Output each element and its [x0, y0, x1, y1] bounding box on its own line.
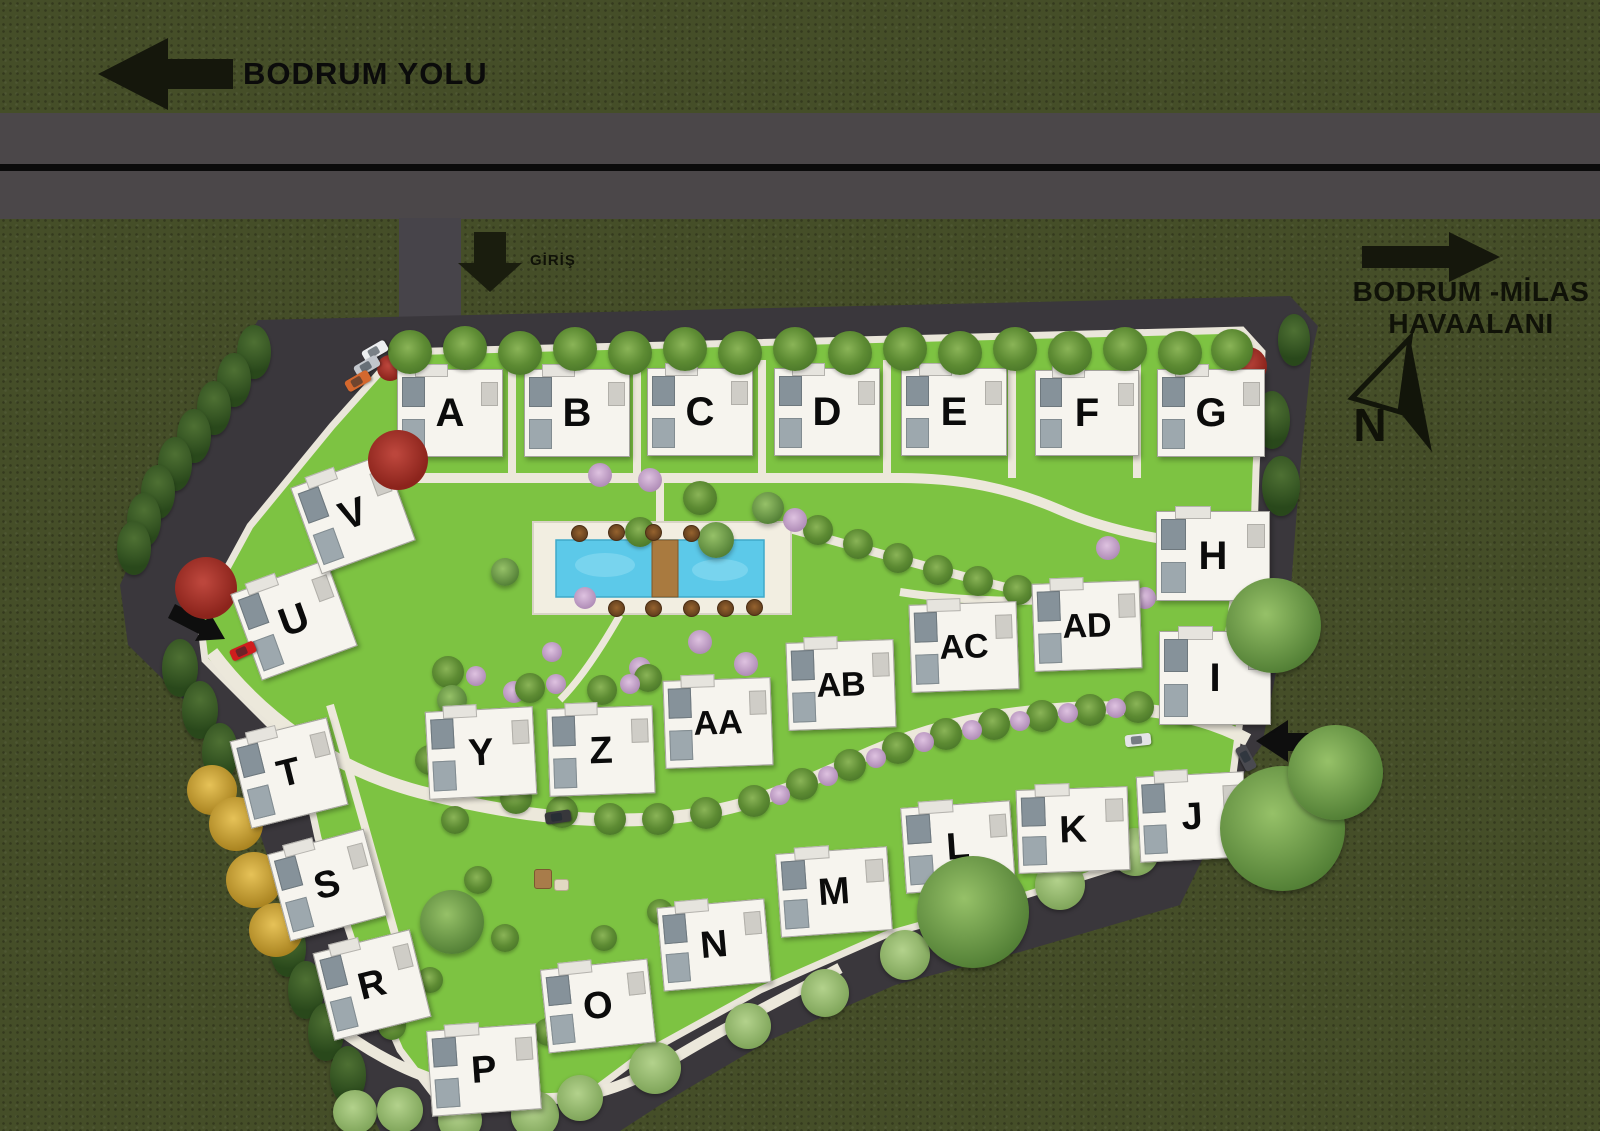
- building-N: N: [657, 898, 772, 991]
- building-L: L: [900, 800, 1016, 893]
- building-A: A: [397, 369, 503, 457]
- buildings-layer: ABCDEFGHIJKLMNOPRSTUVYZAAABACAD: [0, 0, 1600, 1131]
- building-label: M: [776, 847, 891, 936]
- building-label: E: [902, 369, 1006, 455]
- building-O: O: [540, 959, 656, 1054]
- building-AB: AB: [785, 639, 896, 731]
- building-H: H: [1156, 511, 1270, 601]
- building-label: A: [398, 370, 502, 456]
- building-B: B: [524, 369, 630, 457]
- building-label: T: [231, 718, 347, 827]
- building-Z: Z: [546, 705, 655, 797]
- building-label: AD: [1033, 581, 1142, 671]
- building-label: P: [427, 1024, 541, 1115]
- building-S: S: [267, 829, 387, 942]
- building-label: I: [1160, 632, 1270, 724]
- building-label: AA: [664, 678, 773, 768]
- building-label: O: [541, 960, 655, 1053]
- building-J: J: [1136, 771, 1248, 863]
- building-E: E: [901, 368, 1007, 456]
- building-K: K: [1016, 786, 1131, 874]
- building-P: P: [426, 1023, 542, 1116]
- building-U: U: [230, 559, 357, 680]
- building-AA: AA: [662, 677, 773, 769]
- building-label: R: [314, 930, 430, 1039]
- building-label: U: [232, 561, 357, 680]
- building-label: AC: [910, 602, 1019, 692]
- building-C: C: [647, 368, 753, 456]
- building-G: G: [1157, 369, 1265, 457]
- building-label: J: [1137, 772, 1247, 861]
- building-F: F: [1035, 370, 1139, 456]
- building-label: F: [1036, 371, 1138, 455]
- building-label: L: [901, 801, 1015, 892]
- building-label: AB: [787, 640, 896, 730]
- building-T: T: [230, 717, 349, 829]
- building-D: D: [774, 368, 880, 456]
- building-label: B: [525, 370, 629, 456]
- building-label: D: [775, 369, 879, 455]
- building-label: K: [1017, 787, 1130, 873]
- building-label: C: [648, 369, 752, 455]
- building-label: N: [658, 900, 771, 991]
- site-plan-canvas: ABCDEFGHIJKLMNOPRSTUVYZAAABACAD BODRUM Y…: [0, 0, 1600, 1131]
- building-label: G: [1158, 370, 1264, 456]
- building-label: Y: [426, 707, 536, 798]
- building-I: I: [1159, 631, 1271, 725]
- building-label: H: [1157, 512, 1269, 600]
- building-M: M: [775, 846, 893, 938]
- building-V: V: [290, 454, 415, 575]
- building-label: S: [268, 830, 385, 940]
- building-Y: Y: [425, 706, 537, 800]
- building-label: V: [292, 455, 415, 573]
- building-AD: AD: [1031, 580, 1142, 672]
- building-AC: AC: [908, 601, 1019, 693]
- building-R: R: [313, 929, 432, 1041]
- building-label: Z: [548, 706, 655, 796]
